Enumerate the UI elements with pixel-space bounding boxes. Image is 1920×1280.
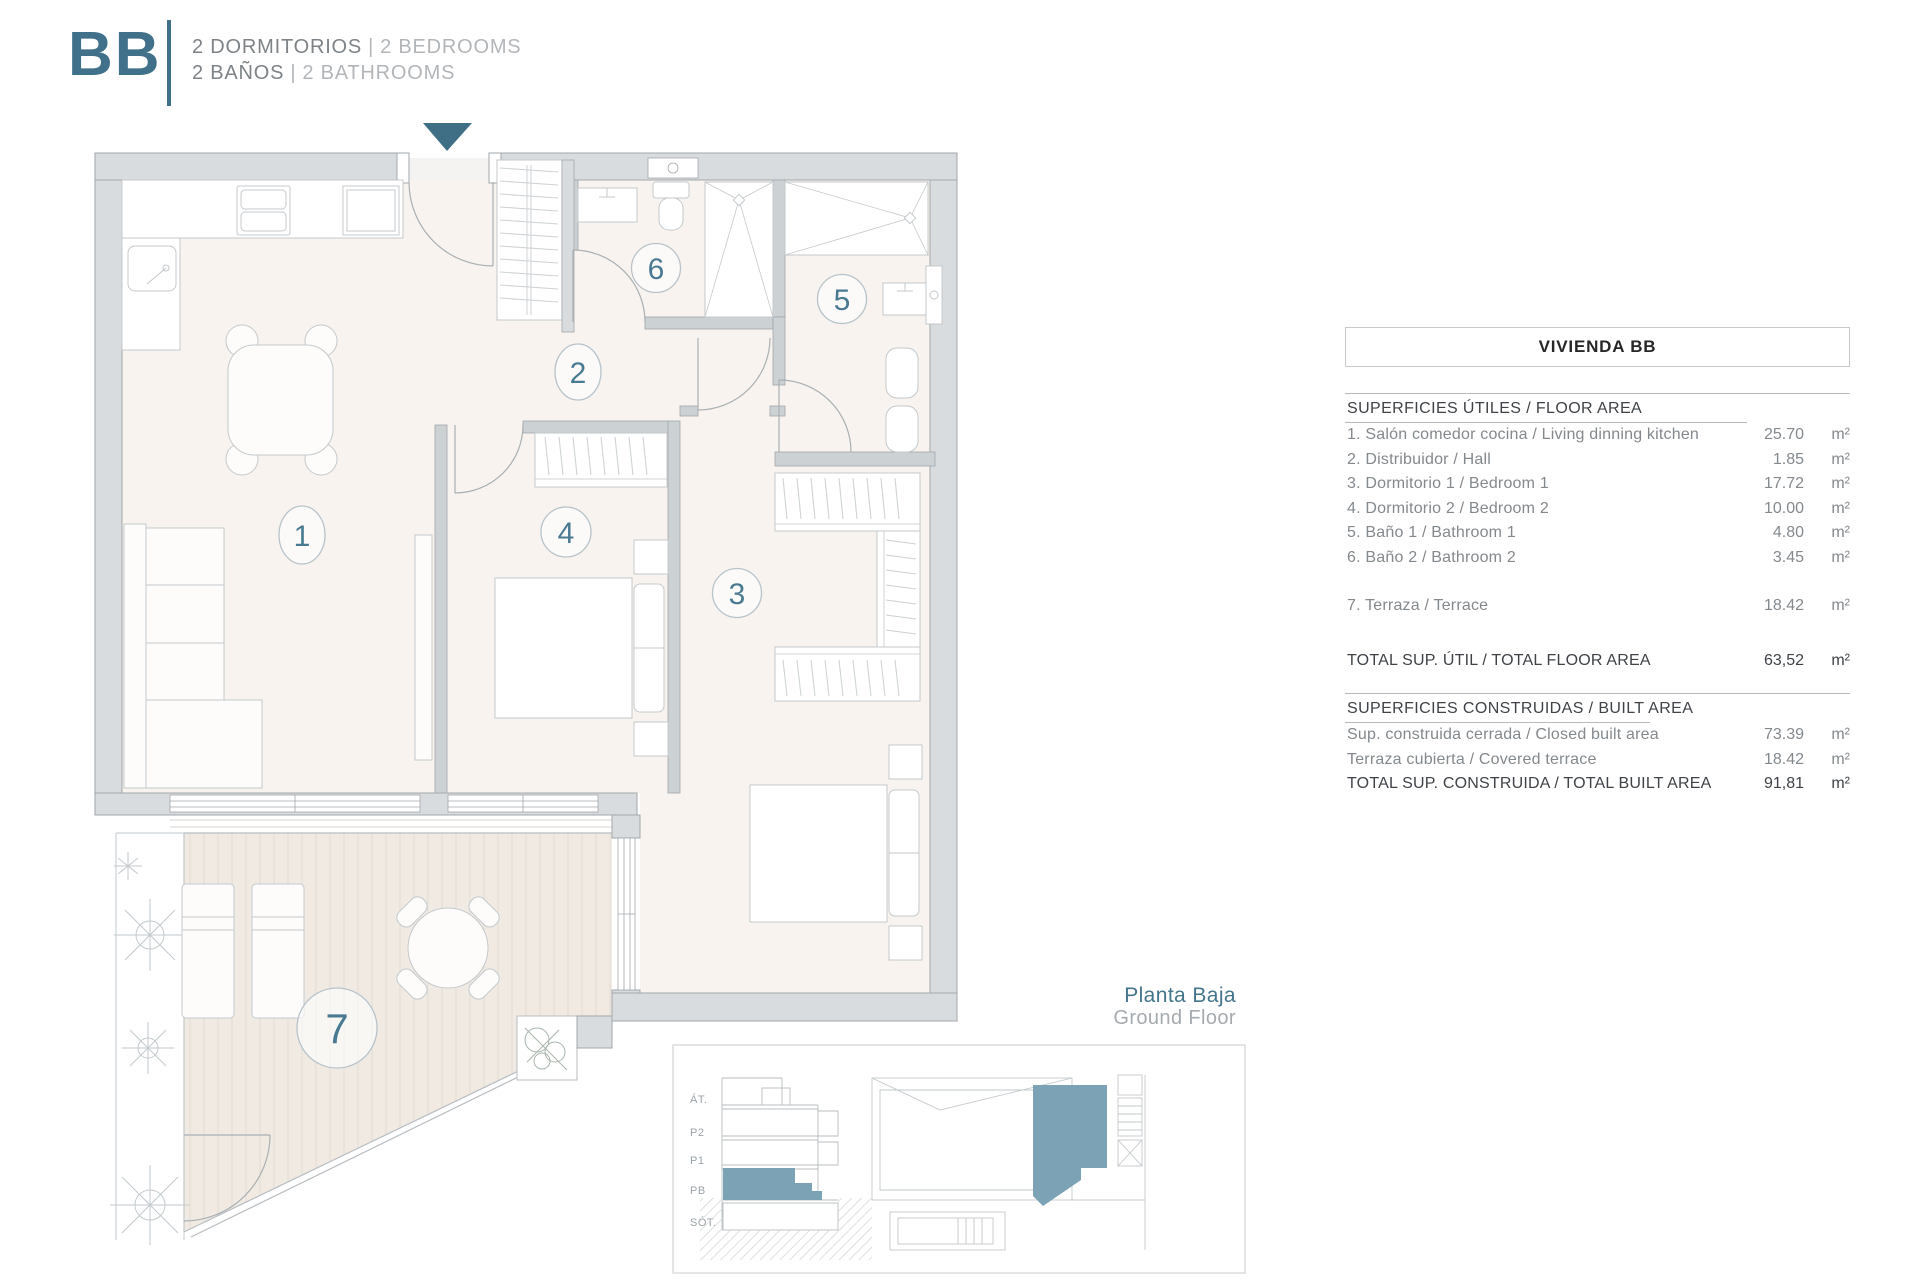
total-row: TOTAL SUP. ÚTIL / TOTAL FLOOR AREA63,52m… xyxy=(1345,649,1850,674)
outdoor-table-set xyxy=(394,894,503,1003)
built-area-section: SUPERFICIES CONSTRUIDAS / BUILT AREA Sup… xyxy=(1345,693,1850,797)
room-label-6: 6 xyxy=(632,244,681,293)
floor-area-section: SUPERFICIES ÚTILES / FLOOR AREA 1. Salón… xyxy=(1345,393,1850,673)
bedroom2-window xyxy=(448,795,598,812)
shower xyxy=(705,182,773,317)
room-label-4: 4 xyxy=(541,507,591,557)
total-unit: m² xyxy=(1804,652,1850,670)
plant-icon xyxy=(110,1165,190,1245)
row-unit: m² xyxy=(1804,426,1850,444)
mini-location-diagram: ÁT. P2 P1 PB SÓT. xyxy=(673,1045,1245,1273)
nightstand xyxy=(634,540,668,574)
room-label-7: 7 xyxy=(297,988,377,1068)
table-title: VIVIENDA BB xyxy=(1345,327,1850,367)
entrance-arrow-icon xyxy=(423,123,472,151)
toilet xyxy=(653,182,689,198)
floor-name-es: Planta Baja xyxy=(1020,984,1236,1007)
row-unit: m² xyxy=(1804,549,1850,567)
total-unit: m² xyxy=(1804,775,1850,793)
room-label-5: 5 xyxy=(818,275,867,324)
row-unit: m² xyxy=(1804,475,1850,493)
row-value: 3.45 xyxy=(1738,549,1804,567)
total-value: 91,81 xyxy=(1738,775,1804,793)
svg-text:5: 5 xyxy=(834,284,851,317)
row-unit: m² xyxy=(1804,726,1850,744)
total-row: TOTAL SUP. CONSTRUIDA / TOTAL BUILT AREA… xyxy=(1345,772,1850,797)
level-label-p2: P2 xyxy=(690,1127,704,1139)
level-label-atico: ÁT. xyxy=(690,1093,707,1106)
table-row: 7. Terraza / Terrace18.42m² xyxy=(1345,594,1850,619)
towel-radiator xyxy=(926,266,942,324)
plant-icon xyxy=(122,1022,174,1074)
row-label: 6. Baño 2 / Bathroom 2 xyxy=(1345,549,1738,567)
table-row: 6. Baño 2 / Bathroom 23.45m² xyxy=(1345,546,1850,571)
table-row: 2. Distribuidor / Hall1.85m² xyxy=(1345,448,1850,473)
toilet xyxy=(886,348,918,398)
lounger xyxy=(252,884,304,1018)
lounger xyxy=(182,884,234,1018)
svg-text:7: 7 xyxy=(325,1005,348,1052)
dining-table xyxy=(228,345,333,455)
row-label: 5. Baño 1 / Bathroom 1 xyxy=(1345,524,1738,542)
closet xyxy=(535,433,667,487)
plant-icon xyxy=(114,852,142,880)
total-label: TOTAL SUP. CONSTRUIDA / TOTAL BUILT AREA xyxy=(1345,775,1738,793)
svg-text:4: 4 xyxy=(558,517,575,550)
row-label: 1. Salón comedor cocina / Living dinning… xyxy=(1345,426,1738,444)
room-label-1: 1 xyxy=(279,506,325,564)
dining-set xyxy=(226,325,337,475)
entry-wardrobe xyxy=(497,160,574,332)
nightstand xyxy=(634,722,668,756)
total-value: 63,52 xyxy=(1738,652,1804,670)
svg-text:6: 6 xyxy=(648,253,665,286)
table-row: 4. Dormitorio 2 / Bedroom 210.00m² xyxy=(1345,497,1850,522)
living-window xyxy=(170,795,420,812)
section-header: SUPERFICIES CONSTRUIDAS / BUILT AREA xyxy=(1345,694,1850,722)
area-table: VIVIENDA BB SUPERFICIES ÚTILES / FLOOR A… xyxy=(1345,327,1850,797)
garden-strip xyxy=(110,833,190,1245)
row-label: Terraza cubierta / Covered terrace xyxy=(1345,751,1738,769)
table-row: 3. Dormitorio 1 / Bedroom 117.72m² xyxy=(1345,472,1850,497)
shower xyxy=(785,182,928,255)
row-unit: m² xyxy=(1804,451,1850,469)
row-value: 18.42 xyxy=(1738,597,1804,615)
table-row: Terraza cubierta / Covered terrace18.42m… xyxy=(1345,748,1850,773)
row-unit: m² xyxy=(1804,597,1850,615)
table-row: 1. Salón comedor cocina / Living dinning… xyxy=(1345,423,1850,448)
row-unit: m² xyxy=(1804,500,1850,518)
row-value: 25.70 xyxy=(1738,426,1804,444)
row-value: 4.80 xyxy=(1738,524,1804,542)
bed xyxy=(495,578,632,718)
svg-text:2: 2 xyxy=(570,357,587,390)
svg-text:3: 3 xyxy=(729,578,746,611)
nightstand xyxy=(889,926,922,960)
room-label-3: 3 xyxy=(713,569,762,618)
room-label-2: 2 xyxy=(555,344,601,400)
level-label-p1: P1 xyxy=(690,1155,704,1167)
row-value: 18.42 xyxy=(1738,751,1804,769)
row-unit: m² xyxy=(1804,751,1850,769)
row-label: 7. Terraza / Terrace xyxy=(1345,597,1738,615)
floor-name-en: Ground Floor xyxy=(1020,1007,1236,1030)
plant-icon xyxy=(114,899,186,971)
row-unit: m² xyxy=(1804,524,1850,542)
row-value: 73.39 xyxy=(1738,726,1804,744)
nightstand xyxy=(889,745,922,779)
table-row: Sup. construida cerrada / Closed built a… xyxy=(1345,723,1850,748)
floor-caption: Planta Baja Ground Floor xyxy=(1020,984,1236,1030)
bidet xyxy=(886,406,918,452)
total-label: TOTAL SUP. ÚTIL / TOTAL FLOOR AREA xyxy=(1345,652,1738,670)
round-table xyxy=(408,908,488,988)
row-label: 4. Dormitorio 2 / Bedroom 2 xyxy=(1345,500,1738,518)
table-row: 5. Baño 1 / Bathroom 14.80m² xyxy=(1345,521,1850,546)
svg-text:1: 1 xyxy=(294,520,311,553)
sideboard xyxy=(415,535,432,760)
row-value: 17.72 xyxy=(1738,475,1804,493)
row-label: 3. Dormitorio 1 / Bedroom 1 xyxy=(1345,475,1738,493)
bedroom1-window xyxy=(618,838,635,990)
ac-unit xyxy=(648,158,698,178)
row-label: 2. Distribuidor / Hall xyxy=(1345,451,1738,469)
row-value: 1.85 xyxy=(1738,451,1804,469)
terrace-planter xyxy=(517,1016,612,1080)
row-label: Sup. construida cerrada / Closed built a… xyxy=(1345,726,1738,744)
section-header: SUPERFICIES ÚTILES / FLOOR AREA xyxy=(1345,394,1850,422)
row-value: 10.00 xyxy=(1738,500,1804,518)
bed xyxy=(750,785,887,922)
level-label-pb: PB xyxy=(690,1185,706,1197)
